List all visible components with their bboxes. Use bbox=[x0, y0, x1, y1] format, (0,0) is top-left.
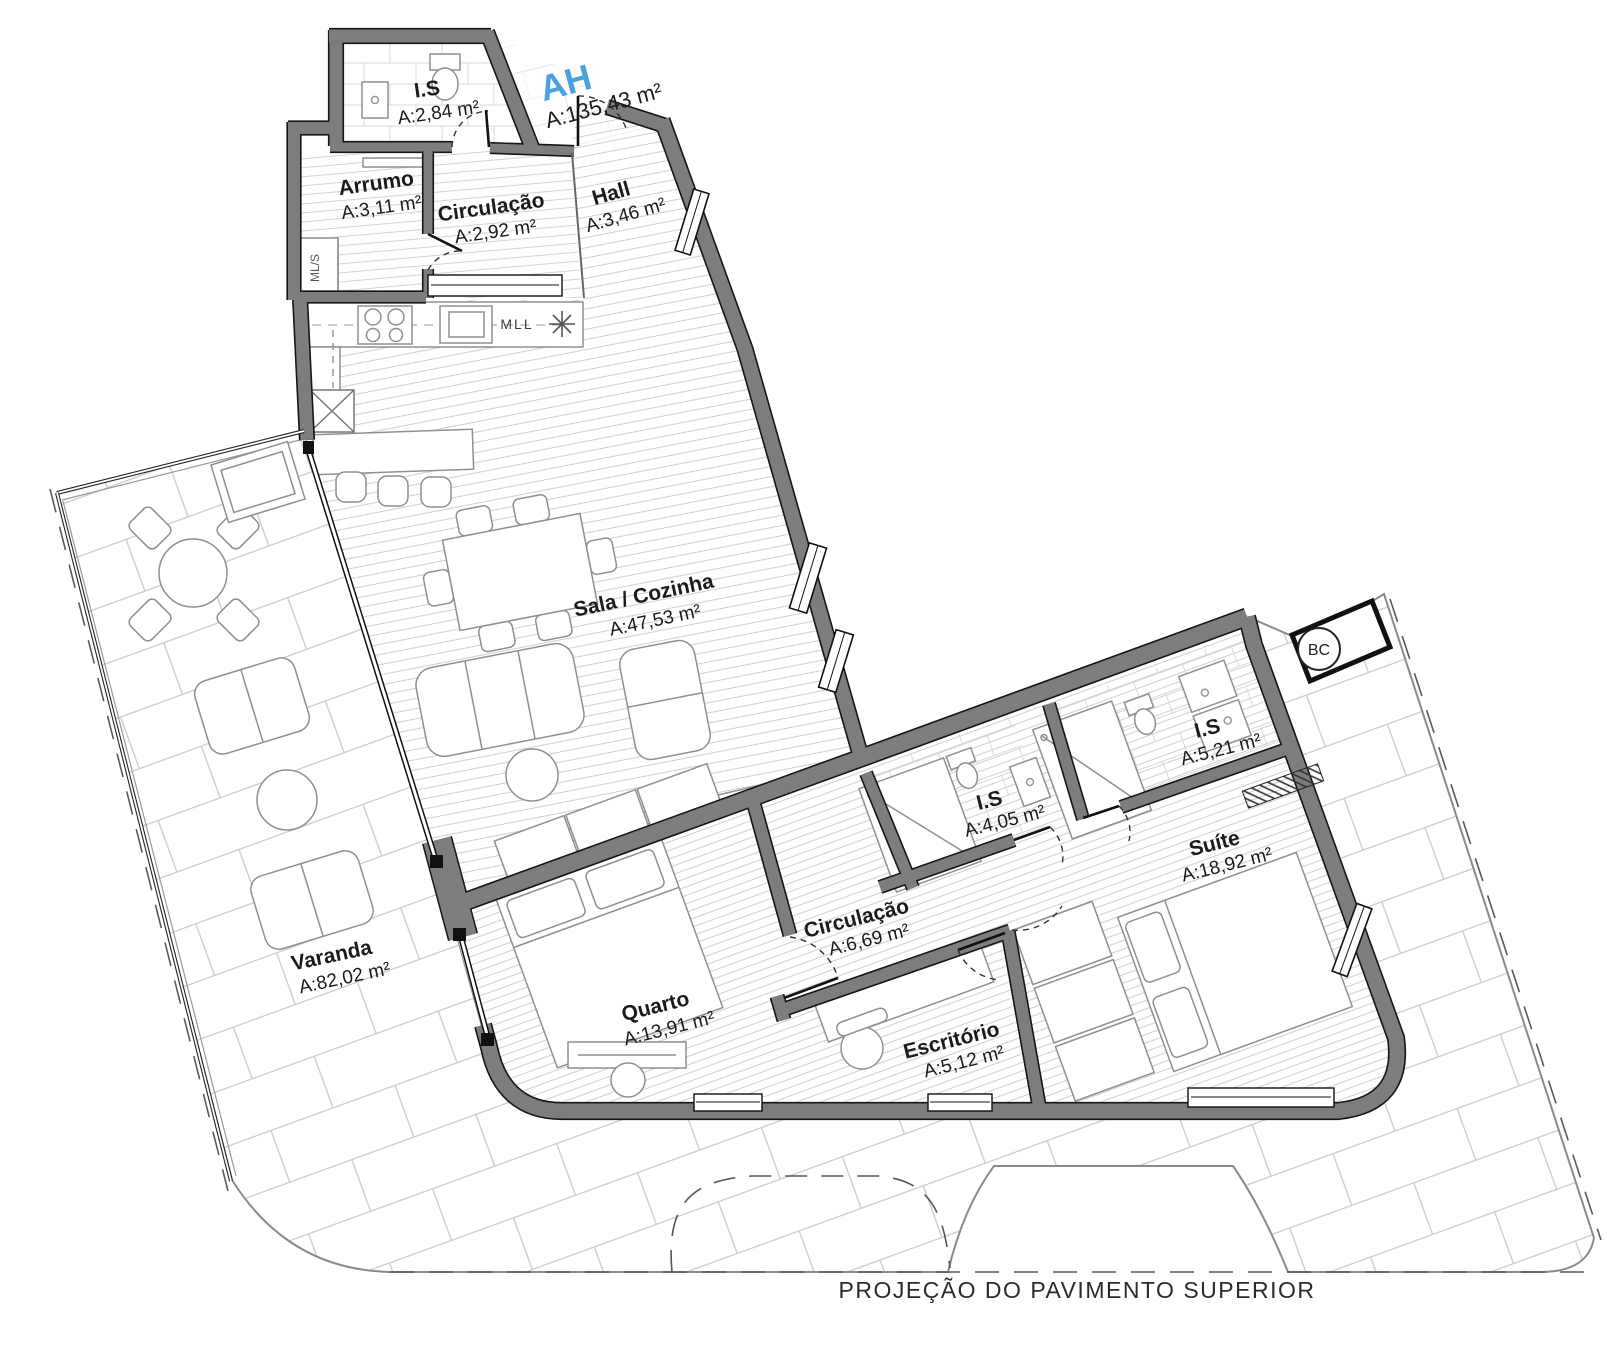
window-kitchen-pass bbox=[428, 275, 562, 296]
glazing-end-block bbox=[453, 928, 466, 941]
glazing-end-block bbox=[303, 441, 314, 454]
pouf bbox=[506, 749, 558, 801]
glazing-end-block bbox=[481, 1033, 494, 1046]
floor-plan-drawing: BC AH A:135,43 m² I.S A:2,84 m² Arrumo A… bbox=[0, 0, 1609, 1353]
window-bottom-escritorio bbox=[928, 1094, 992, 1111]
kitchen-island bbox=[312, 429, 473, 475]
sink-icon bbox=[362, 82, 388, 118]
balcony-chair bbox=[257, 770, 317, 830]
cooktop-icon bbox=[358, 306, 412, 344]
footer-note: PROJEÇÃO DO PAVIMENTO SUPERIOR bbox=[839, 1277, 1316, 1303]
window-bottom-quarto bbox=[694, 1094, 762, 1111]
bc-label: BC bbox=[1308, 642, 1330, 659]
sink-icon bbox=[440, 306, 492, 343]
island-stool bbox=[336, 472, 366, 502]
dishwasher-label: MLL bbox=[500, 316, 533, 332]
window-bottom-suite bbox=[1188, 1088, 1334, 1107]
island-stool bbox=[421, 477, 451, 507]
svg-text:I.S: I.S bbox=[413, 76, 442, 102]
washer-label: ML/S bbox=[308, 254, 322, 282]
column-shaft bbox=[310, 390, 354, 432]
floor-plan-sheet: BC AH A:135,43 m² I.S A:2,84 m² Arrumo A… bbox=[0, 0, 1609, 1353]
glazing-end-block bbox=[430, 855, 443, 868]
island-stool bbox=[378, 476, 408, 506]
